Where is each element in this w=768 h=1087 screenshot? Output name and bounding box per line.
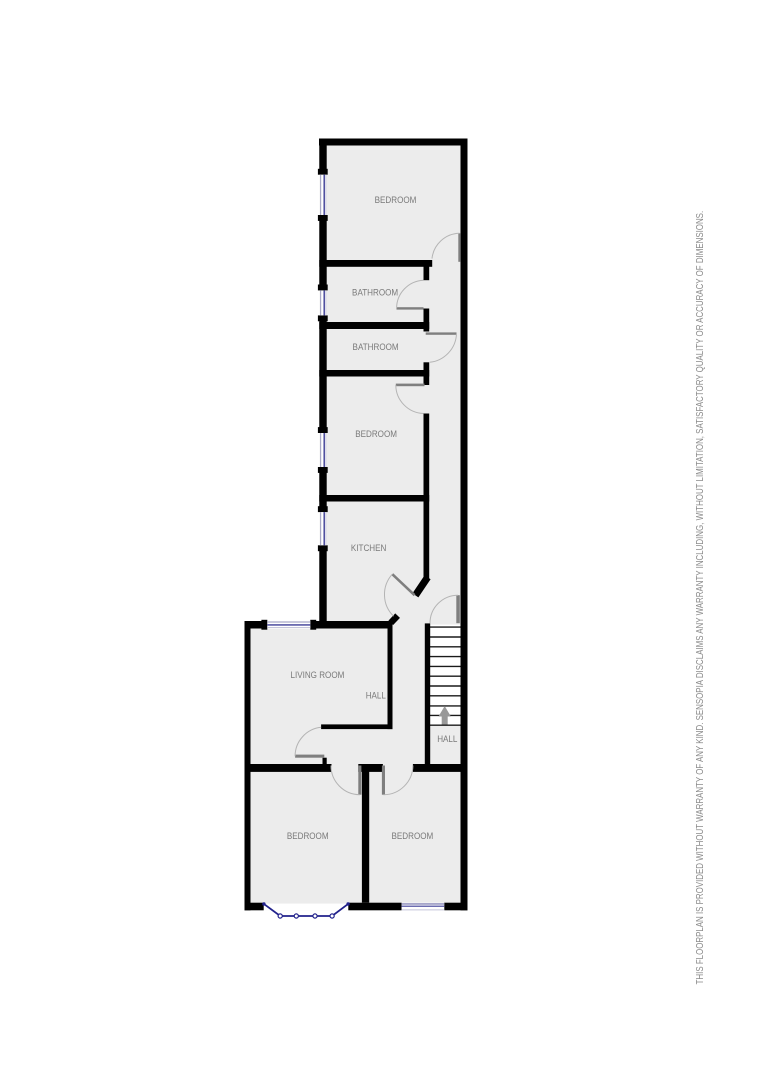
svg-text:BEDROOM: BEDROOM — [375, 194, 417, 204]
svg-text:BATHROOM: BATHROOM — [353, 341, 399, 351]
svg-text:BEDROOM: BEDROOM — [392, 831, 434, 841]
svg-text:BEDROOM: BEDROOM — [355, 429, 397, 439]
svg-text:THIS FLOORPLAN IS PROVIDED WIT: THIS FLOORPLAN IS PROVIDED WITHOUT WARRA… — [694, 211, 705, 985]
svg-text:BATHROOM: BATHROOM — [352, 287, 398, 297]
svg-text:HALL: HALL — [437, 734, 458, 744]
svg-text:KITCHEN: KITCHEN — [351, 543, 386, 553]
svg-text:BEDROOM: BEDROOM — [287, 831, 329, 841]
svg-text:LIVING ROOM: LIVING ROOM — [290, 670, 344, 680]
svg-text:HALL: HALL — [366, 690, 387, 700]
